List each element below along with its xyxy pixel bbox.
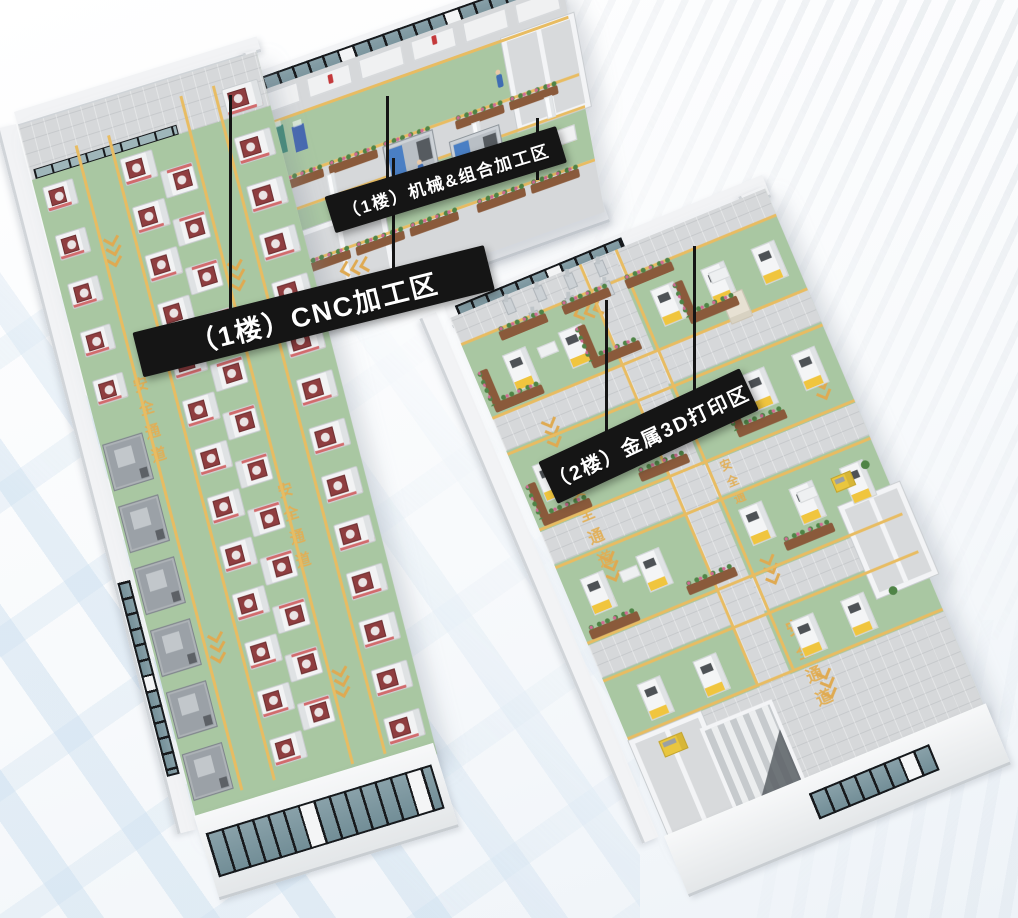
lane-chevron-icon bbox=[816, 385, 831, 400]
banner-pole bbox=[693, 246, 696, 396]
printer-3d bbox=[840, 592, 879, 638]
cnc-machine bbox=[209, 355, 248, 392]
machine-tool-gray bbox=[118, 494, 170, 553]
planter-box bbox=[479, 368, 502, 406]
cnc-machine bbox=[132, 197, 171, 234]
cnc-machine bbox=[92, 372, 129, 407]
cnc-machine bbox=[272, 597, 311, 634]
machine-tool-gray bbox=[182, 742, 234, 801]
cnc-machine bbox=[269, 730, 308, 767]
cnc-machine bbox=[194, 439, 233, 476]
cnc-machine bbox=[259, 549, 298, 586]
cnc-machine bbox=[321, 466, 364, 504]
cnc-machine bbox=[42, 178, 79, 213]
cnc-machine bbox=[119, 149, 158, 186]
cnc-machine bbox=[219, 536, 258, 573]
cnc-machine bbox=[308, 417, 351, 455]
lane-chevron-icon bbox=[210, 647, 226, 663]
cnc-machine bbox=[55, 226, 92, 261]
printer-3d bbox=[635, 547, 674, 593]
cnc-machine bbox=[247, 500, 286, 537]
printer-3d bbox=[692, 652, 731, 698]
cnc-machine bbox=[172, 210, 211, 247]
cnc-machine bbox=[231, 585, 270, 622]
work-desk bbox=[537, 341, 560, 359]
cnc-machine bbox=[67, 275, 104, 310]
cnc-machine bbox=[256, 681, 295, 718]
machine-tool-gray bbox=[150, 618, 202, 677]
cnc-machine bbox=[370, 659, 413, 697]
cnc-machine bbox=[358, 611, 401, 649]
cnc-machine bbox=[296, 369, 339, 407]
cnc-machine bbox=[233, 127, 276, 165]
cnc-machine bbox=[333, 514, 376, 552]
cnc-machine bbox=[284, 646, 323, 683]
cnc-machine bbox=[244, 633, 283, 670]
cnc-machine bbox=[206, 488, 245, 525]
printer-3d bbox=[637, 675, 676, 721]
cnc-machine bbox=[234, 452, 273, 489]
cnc-machine bbox=[222, 404, 261, 441]
cnc-machine bbox=[345, 562, 388, 600]
factory-3d-overview: 安全通道 安全通道 安全通道 安全通道 bbox=[0, 0, 1018, 918]
work-desk bbox=[618, 565, 641, 583]
cnc-machine bbox=[144, 246, 183, 283]
cnc-machine bbox=[182, 391, 221, 428]
machine-tool-gray bbox=[166, 680, 218, 739]
banner-pole bbox=[386, 96, 389, 184]
cnc-machine bbox=[383, 708, 426, 746]
cnc-machine bbox=[160, 162, 199, 199]
cnc-machine bbox=[297, 694, 336, 731]
banner-pole bbox=[605, 300, 608, 440]
machine-tool-gray bbox=[134, 556, 186, 615]
cnc-machine bbox=[185, 258, 224, 295]
banner-pole bbox=[229, 95, 232, 318]
cnc-machine bbox=[246, 175, 289, 213]
printer-3d bbox=[738, 500, 777, 546]
printer-3d bbox=[751, 240, 790, 286]
cnc-machine bbox=[258, 224, 301, 262]
cnc-machine bbox=[79, 323, 116, 358]
